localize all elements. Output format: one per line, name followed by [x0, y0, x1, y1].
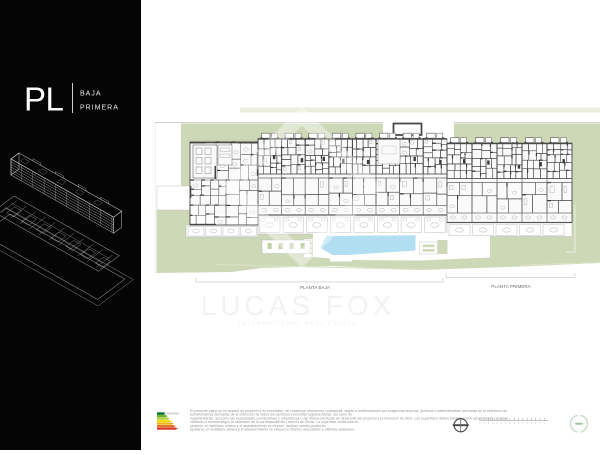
svg-text:INTERNATIONAL REAL ESTATE: INTERNATIONAL REAL ESTATE — [239, 321, 358, 327]
svg-text:LUCAS FOX: LUCAS FOX — [201, 290, 396, 321]
svg-text:PRIMERA: PRIMERA — [80, 105, 119, 112]
svg-text:ajustarse, el mobiliario urban: ajustarse, el mobiliario urbano y el aba… — [190, 428, 355, 432]
svg-text:PL: PL — [24, 81, 64, 118]
svg-text:PLANTA BAJA: PLANTA BAJA — [300, 285, 331, 290]
svg-text:PLANTA PRIMERA: PLANTA PRIMERA — [491, 284, 531, 289]
svg-text:BAJA: BAJA — [80, 91, 102, 98]
